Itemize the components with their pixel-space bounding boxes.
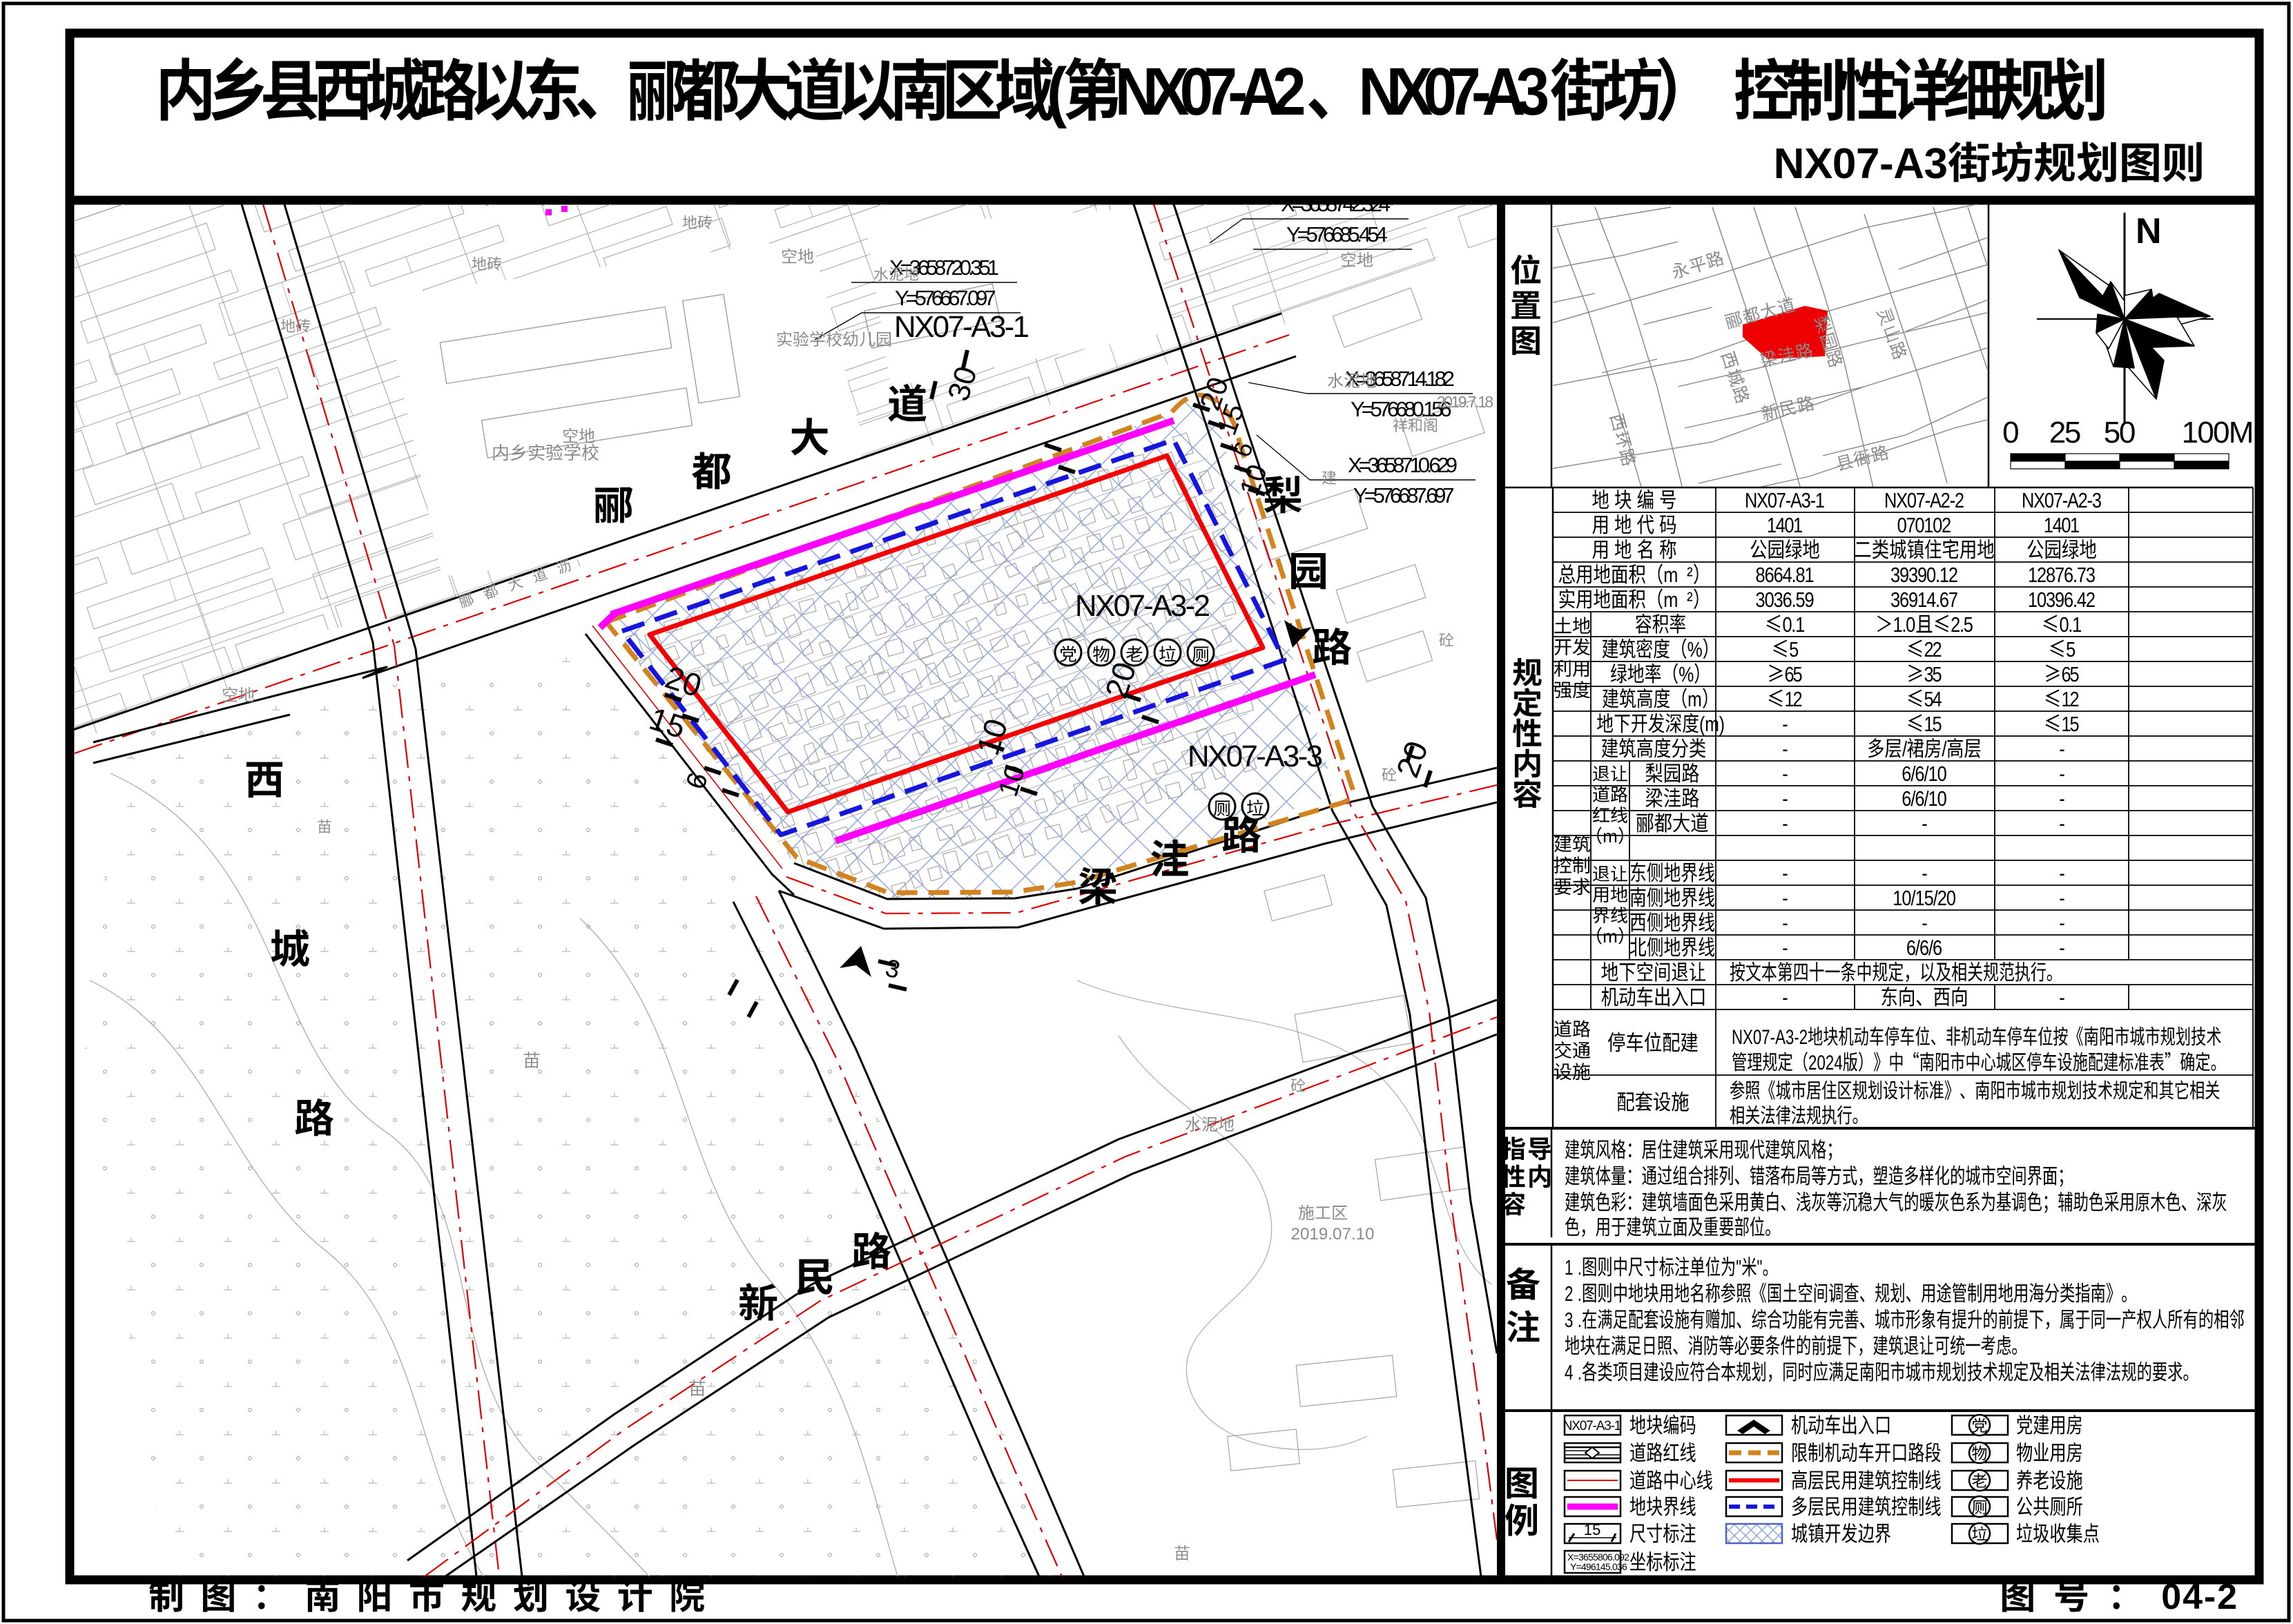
svg-text:25: 25 bbox=[2049, 416, 2082, 449]
svg-text:8664.81: 8664.81 bbox=[1756, 563, 1815, 588]
svg-text:39390.12: 39390.12 bbox=[1890, 563, 1958, 588]
svg-text:-: - bbox=[1782, 713, 1788, 737]
svg-text:NX07-A3-1: NX07-A3-1 bbox=[894, 310, 1029, 344]
svg-text:2024: 2024 bbox=[1808, 1051, 1843, 1074]
svg-text:5: 5 bbox=[1789, 638, 1799, 662]
svg-text:-: - bbox=[2059, 762, 2064, 786]
svg-text:1.0: 1.0 bbox=[1893, 613, 1915, 637]
svg-text:-: - bbox=[1782, 887, 1788, 911]
svg-text:0: 0 bbox=[2002, 416, 2019, 449]
svg-text:35: 35 bbox=[1924, 663, 1942, 687]
svg-text:": " bbox=[1736, 1255, 1741, 1279]
svg-text:54: 54 bbox=[1924, 688, 1942, 712]
svg-text:-: - bbox=[2059, 986, 2064, 1010]
svg-text:m: m bbox=[1687, 687, 1702, 710]
svg-text:/: / bbox=[1942, 737, 1946, 762]
svg-text:3036.59: 3036.59 bbox=[1756, 588, 1815, 612]
svg-text:15: 15 bbox=[1924, 713, 1942, 737]
svg-text:-: - bbox=[2059, 737, 2064, 762]
svg-text:NX07-A3: NX07-A3 bbox=[1359, 54, 1550, 129]
svg-text:65: 65 bbox=[1784, 663, 1802, 687]
svg-text:X=3658710.629: X=3658710.629 bbox=[1348, 453, 1458, 477]
svg-text:2019.07.10: 2019.07.10 bbox=[1291, 1225, 1375, 1244]
svg-text:-: - bbox=[1782, 936, 1788, 960]
svg-text:-: - bbox=[2059, 887, 2064, 911]
svg-text:X=3658714.182: X=3658714.182 bbox=[1345, 367, 1455, 391]
svg-text:Y=576685.454: Y=576685.454 bbox=[1286, 222, 1388, 246]
svg-text:070102: 070102 bbox=[1897, 514, 1952, 538]
svg-text:-: - bbox=[1922, 911, 1927, 936]
svg-text:NX07-A2: NX07-A2 bbox=[1115, 54, 1306, 129]
svg-text:NX07-A3-1: NX07-A3-1 bbox=[1745, 489, 1825, 513]
svg-text:1401: 1401 bbox=[1767, 514, 1803, 538]
svg-text:-: - bbox=[2059, 812, 2064, 836]
svg-text:0.1: 0.1 bbox=[1782, 613, 1805, 637]
svg-text:Y=496145.036: Y=496145.036 bbox=[1570, 1561, 1627, 1572]
svg-text:12: 12 bbox=[1784, 688, 1802, 712]
svg-text:-: - bbox=[2059, 911, 2064, 936]
svg-text:N: N bbox=[2136, 211, 2162, 251]
svg-text:15: 15 bbox=[2061, 713, 2079, 737]
svg-text:12: 12 bbox=[2061, 688, 2079, 712]
svg-text:%: % bbox=[1687, 637, 1703, 661]
svg-text:-: - bbox=[1782, 862, 1788, 886]
svg-text:36914.67: 36914.67 bbox=[1890, 588, 1958, 612]
svg-text:-: - bbox=[2059, 787, 2064, 811]
svg-text:100M: 100M bbox=[2182, 416, 2254, 449]
svg-text:": " bbox=[1757, 1255, 1763, 1279]
svg-text:NX07-A3-1: NX07-A3-1 bbox=[1563, 1419, 1622, 1433]
svg-text:-: - bbox=[1922, 862, 1927, 886]
svg-text:15: 15 bbox=[1584, 1521, 1601, 1538]
svg-text:(: ( bbox=[1047, 54, 1067, 129]
svg-text:NX07-A3-2: NX07-A3-2 bbox=[1732, 1025, 1808, 1049]
svg-text:Y=576687.697: Y=576687.697 bbox=[1353, 483, 1455, 507]
svg-text:2.5: 2.5 bbox=[1951, 613, 1973, 637]
svg-text:50: 50 bbox=[2104, 416, 2136, 449]
svg-text:Y=576667.097: Y=576667.097 bbox=[895, 286, 996, 310]
svg-text:NX07-A2-2: NX07-A2-2 bbox=[1884, 489, 1964, 513]
svg-text:65: 65 bbox=[2061, 663, 2079, 687]
svg-text:m: m bbox=[1603, 826, 1618, 847]
svg-text:12876.73: 12876.73 bbox=[2028, 563, 2096, 588]
svg-text:(m): (m) bbox=[1699, 712, 1725, 735]
svg-text:2019.7.18: 2019.7.18 bbox=[1437, 393, 1493, 411]
svg-text:%: % bbox=[1678, 662, 1694, 686]
svg-text:6/6/10: 6/6/10 bbox=[1902, 762, 1947, 786]
svg-text:-: - bbox=[1782, 911, 1788, 936]
svg-text:-: - bbox=[1782, 787, 1788, 811]
svg-text:NX07-A2-3: NX07-A2-3 bbox=[2022, 489, 2102, 513]
svg-text:-: - bbox=[1782, 762, 1788, 786]
svg-text:22: 22 bbox=[1924, 638, 1942, 662]
svg-text:1401: 1401 bbox=[2044, 514, 2080, 538]
svg-text:-: - bbox=[1922, 812, 1927, 836]
svg-text:/: / bbox=[1902, 737, 1907, 762]
svg-text:10396.42: 10396.42 bbox=[2028, 588, 2096, 612]
svg-text:-: - bbox=[1782, 737, 1788, 762]
svg-text:NX07-A3: NX07-A3 bbox=[1774, 140, 1948, 188]
svg-text:NX07-A3-2: NX07-A3-2 bbox=[1075, 589, 1210, 623]
svg-text:X=3658720.351: X=3658720.351 bbox=[889, 255, 999, 280]
svg-text:-: - bbox=[2059, 936, 2064, 960]
svg-text:6/6/6: 6/6/6 bbox=[1906, 936, 1942, 960]
svg-text:X=3655806.092: X=3655806.092 bbox=[1567, 1551, 1629, 1563]
svg-text:-: - bbox=[1782, 812, 1788, 836]
svg-text:NX07-A3-3: NX07-A3-3 bbox=[1188, 739, 1323, 773]
svg-text:04-2: 04-2 bbox=[2161, 1577, 2237, 1617]
svg-text:-: - bbox=[1782, 986, 1788, 1010]
svg-text:m: m bbox=[1603, 926, 1618, 947]
svg-text:-: - bbox=[2059, 862, 2064, 886]
svg-text:6/6/10: 6/6/10 bbox=[1902, 787, 1947, 811]
svg-text:5: 5 bbox=[2066, 638, 2076, 662]
svg-text:0.1: 0.1 bbox=[2059, 613, 2082, 637]
svg-text:10/15/20: 10/15/20 bbox=[1893, 887, 1956, 911]
